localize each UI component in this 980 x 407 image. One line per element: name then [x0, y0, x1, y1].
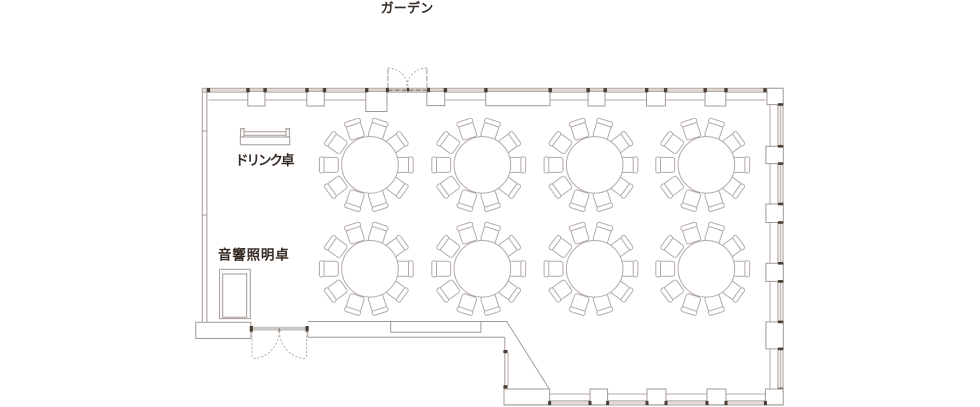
- svg-text:音響照明卓: 音響照明卓: [218, 247, 290, 263]
- svg-text:ドリンク卓: ドリンク卓: [235, 152, 295, 168]
- svg-text:ガーデン: ガーデン: [381, 1, 434, 16]
